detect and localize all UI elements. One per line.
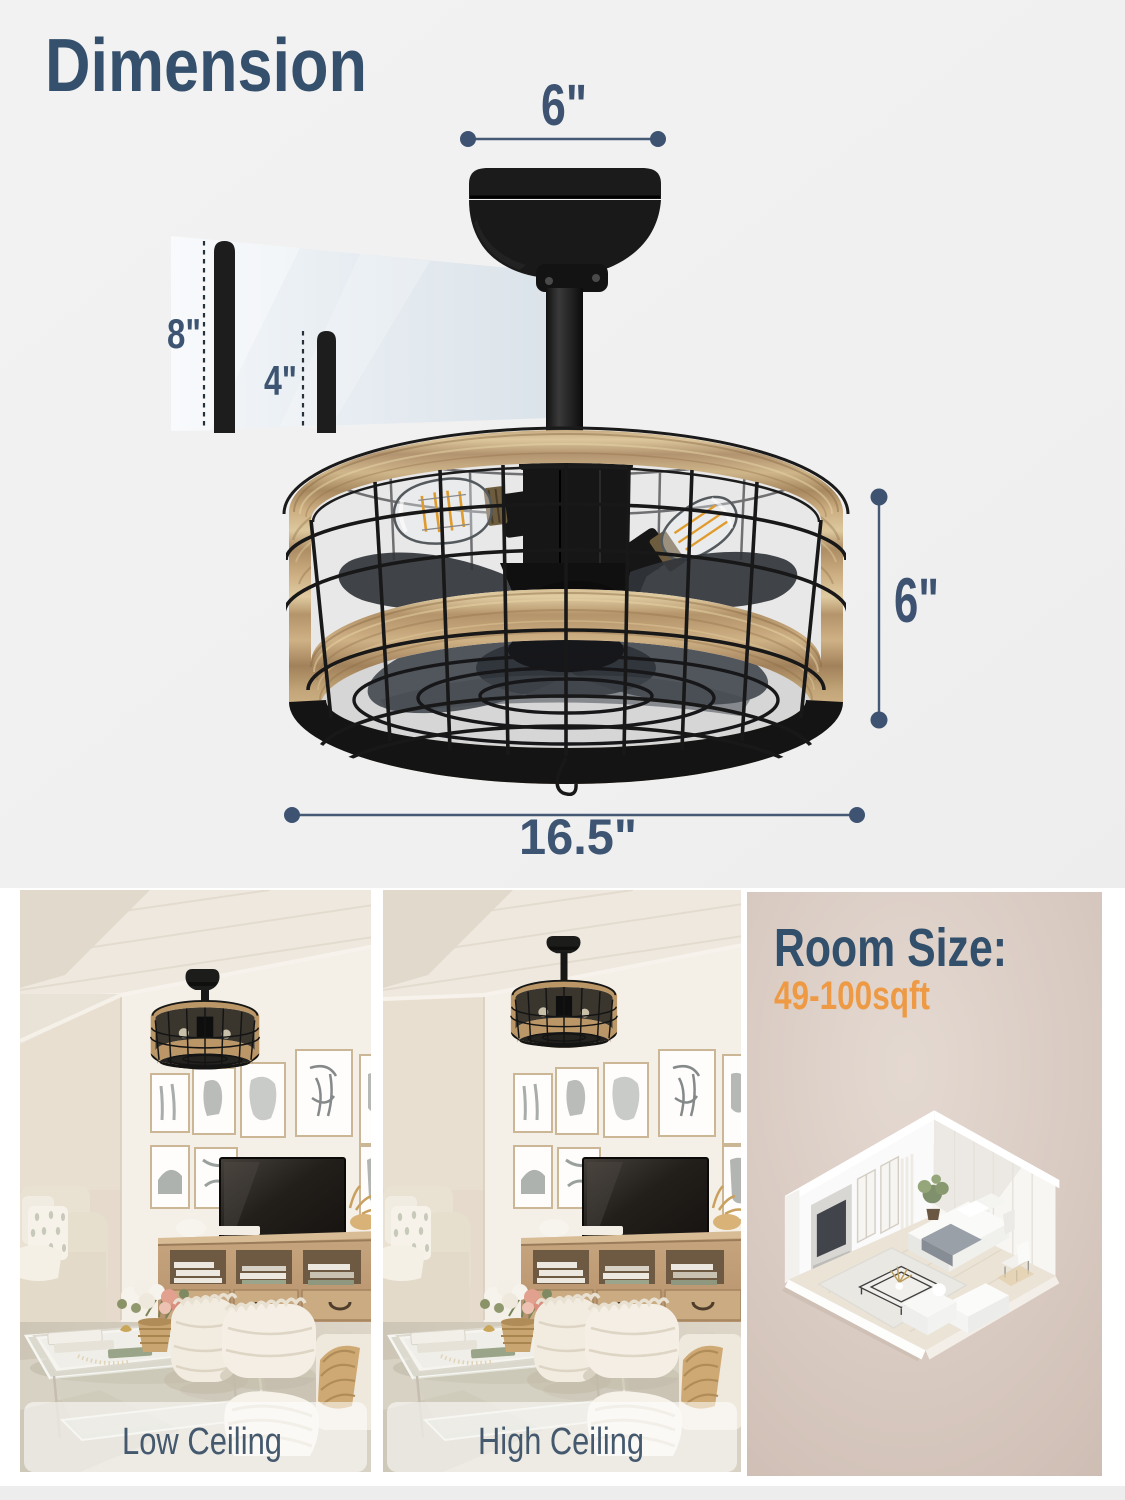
svg-text:High Ceiling: High Ceiling xyxy=(478,1421,644,1463)
svg-text:4": 4" xyxy=(264,357,297,404)
svg-text:6": 6" xyxy=(894,566,939,636)
svg-text:Dimension: Dimension xyxy=(45,23,367,107)
svg-text:Low Ceiling: Low Ceiling xyxy=(122,1421,282,1463)
svg-text:6": 6" xyxy=(541,73,587,138)
svg-text:49-100sqft: 49-100sqft xyxy=(774,974,930,1018)
svg-text:8": 8" xyxy=(167,310,201,357)
svg-text:Room Size:: Room Size: xyxy=(774,918,1007,978)
svg-text:16.5": 16.5" xyxy=(519,809,637,865)
